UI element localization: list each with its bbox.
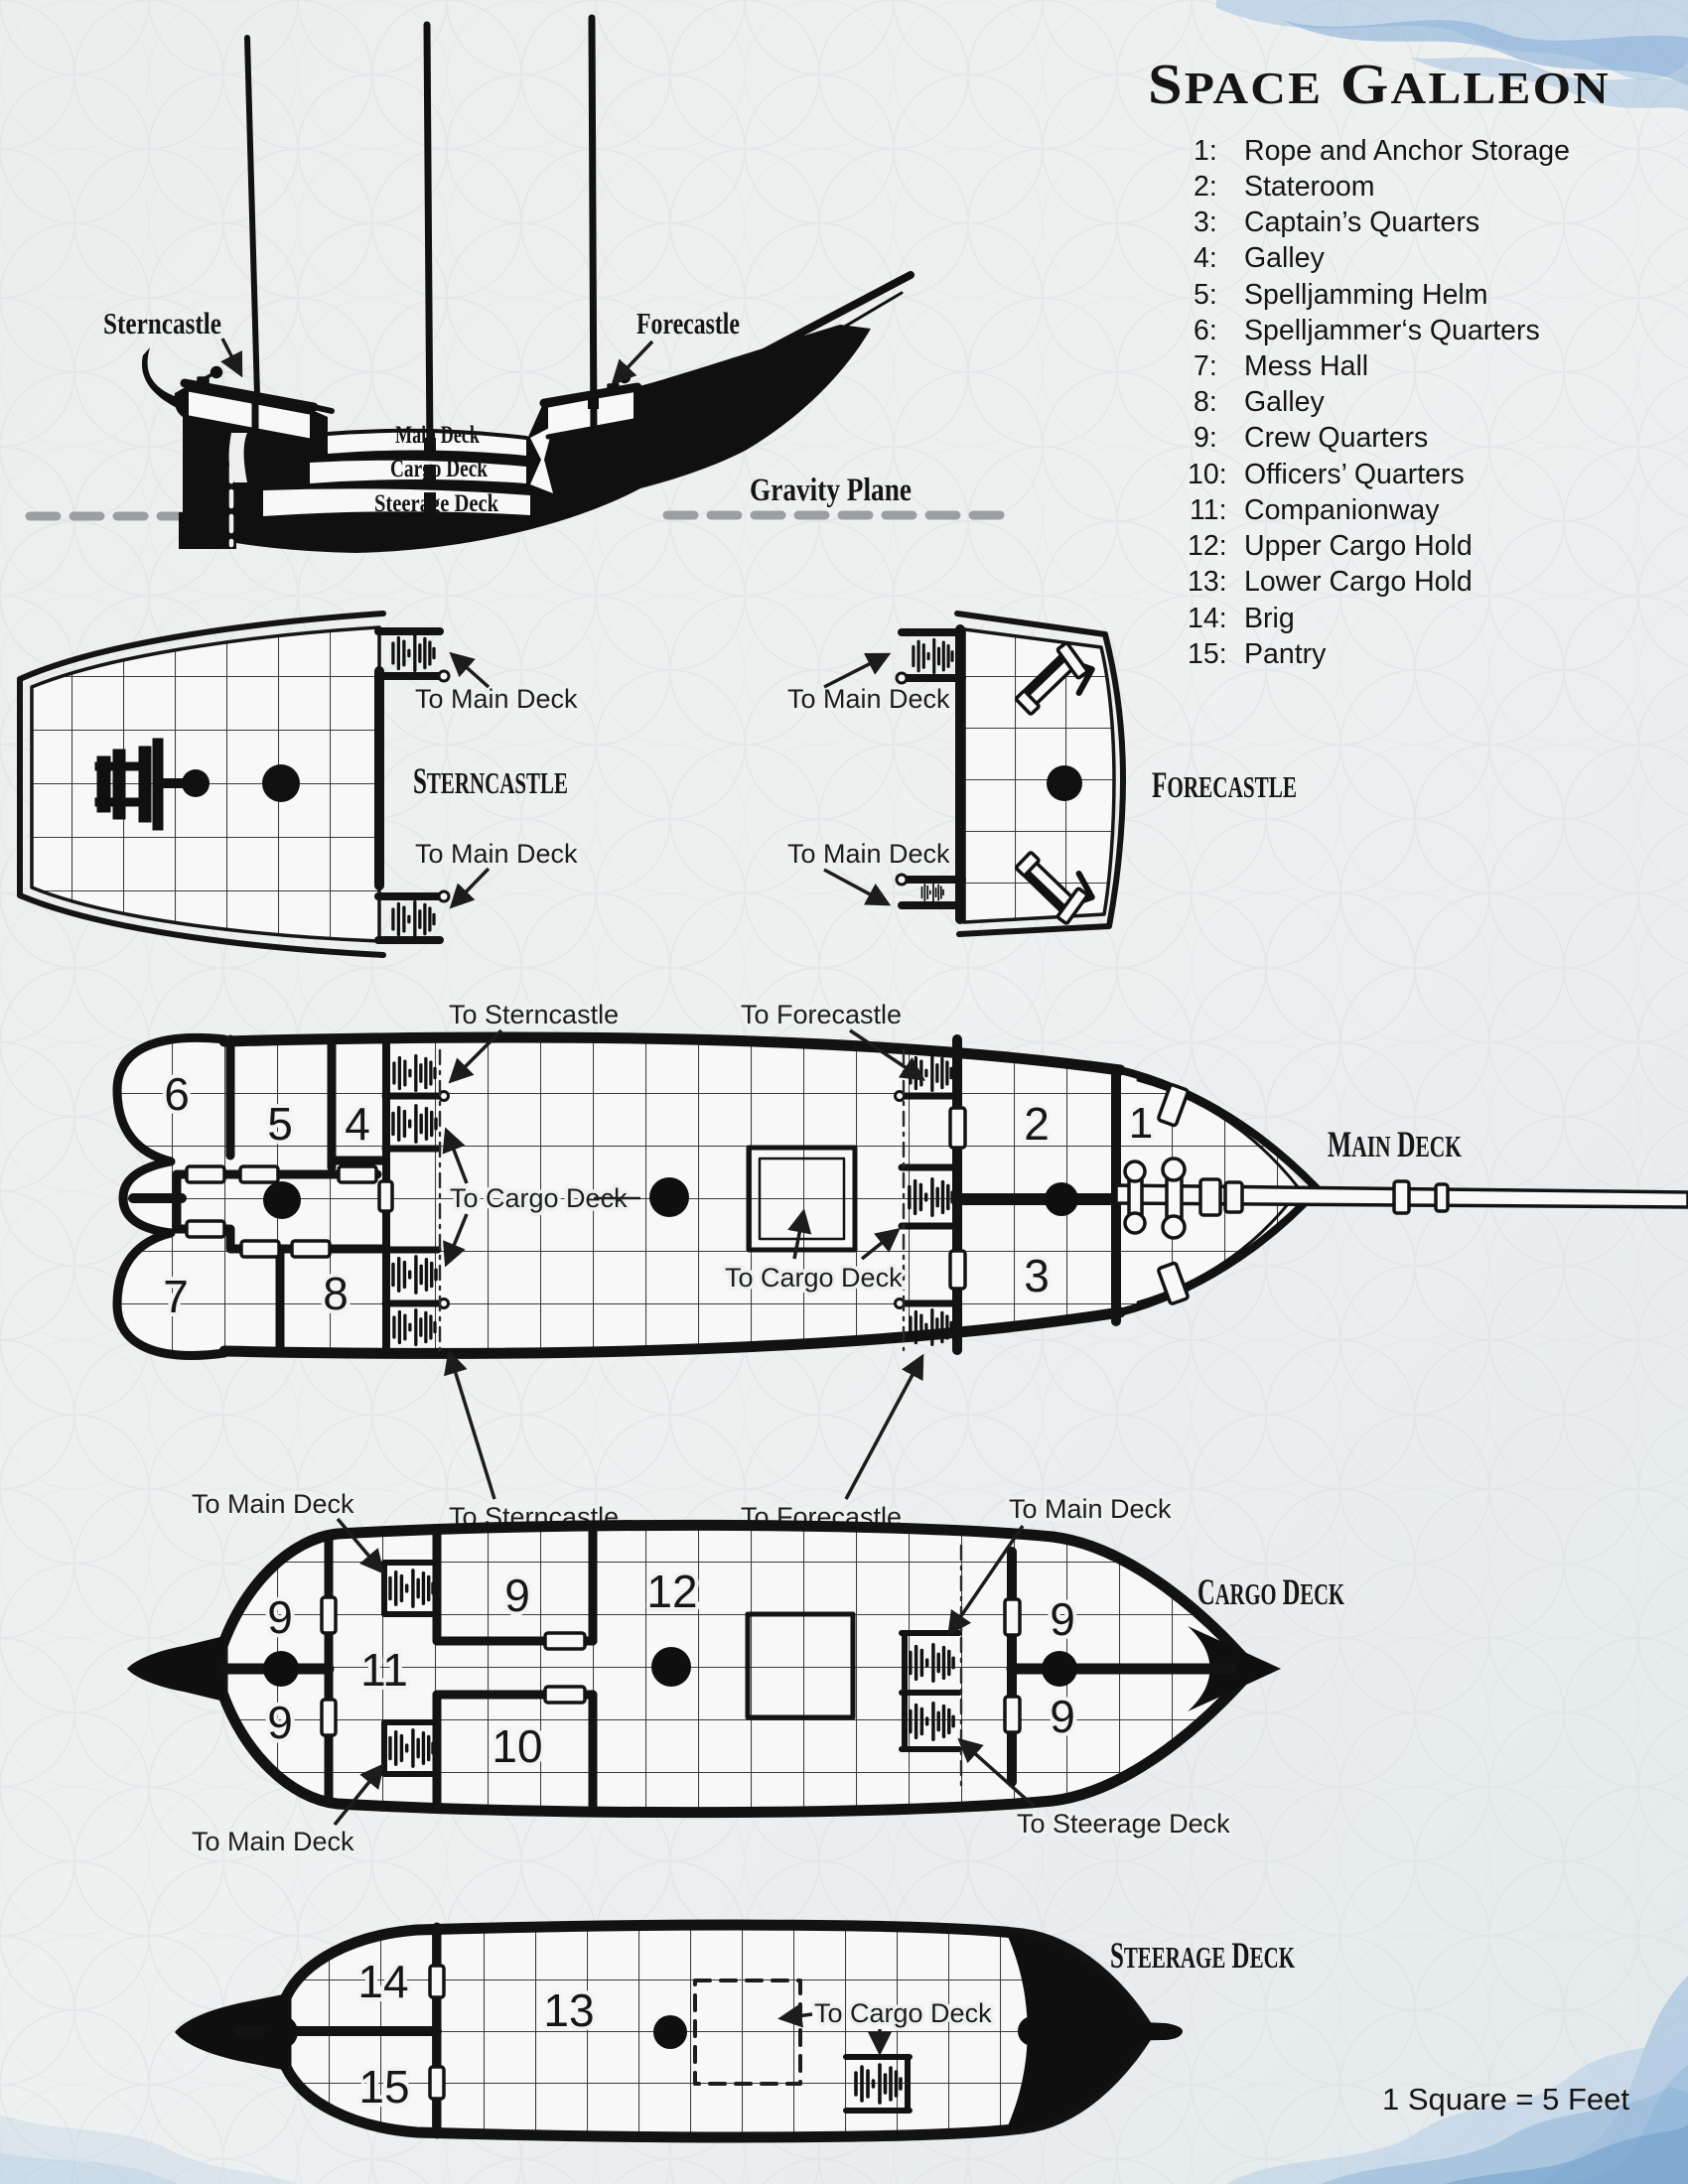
svg-text:CARGO DECK: CARGO DECK <box>1197 1572 1344 1613</box>
svg-text:1: 1 <box>1129 1099 1153 1148</box>
svg-text:Captain’s Quarters: Captain’s Quarters <box>1244 206 1479 238</box>
svg-text:To Sterncastle: To Sterncastle <box>449 1000 619 1029</box>
svg-text:To Main Deck: To Main Deck <box>415 839 578 869</box>
svg-text:MAIN DECK: MAIN DECK <box>1328 1125 1462 1165</box>
svg-text:STERNCASTLE: STERNCASTLE <box>413 761 568 802</box>
svg-text:To Main Deck: To Main Deck <box>1009 1494 1172 1524</box>
svg-text:5: 5 <box>267 1098 293 1150</box>
svg-text:To Cargo Deck: To Cargo Deck <box>725 1263 903 1293</box>
svg-text:9: 9 <box>1050 1593 1075 1645</box>
svg-text:Officers’ Quarters: Officers’ Quarters <box>1244 459 1465 490</box>
svg-text:5:: 5: <box>1194 279 1217 311</box>
svg-text:11:: 11: <box>1190 494 1227 526</box>
svg-text:6: 6 <box>164 1068 190 1120</box>
svg-text:10:: 10: <box>1188 459 1227 490</box>
svg-text:4:: 4: <box>1194 242 1217 274</box>
svg-text:11: 11 <box>360 1644 408 1696</box>
svg-text:1:: 1: <box>1194 135 1217 167</box>
svg-text:14: 14 <box>357 1956 408 2007</box>
svg-text:10: 10 <box>492 1720 542 1772</box>
svg-text:Lower Cargo Hold: Lower Cargo Hold <box>1244 566 1473 598</box>
svg-text:14:: 14: <box>1188 603 1227 634</box>
svg-text:Forecastle: Forecastle <box>636 306 740 341</box>
svg-text:9: 9 <box>267 1591 293 1643</box>
svg-text:13:: 13: <box>1188 566 1227 598</box>
svg-text:Main Deck: Main Deck <box>395 422 480 449</box>
svg-text:9: 9 <box>267 1697 293 1748</box>
svg-text:Galley: Galley <box>1244 242 1326 274</box>
svg-text:7:: 7: <box>1194 350 1217 382</box>
svg-text:To Main Deck: To Main Deck <box>192 1489 354 1519</box>
svg-text:8: 8 <box>323 1268 349 1319</box>
svg-text:15:: 15: <box>1188 638 1227 670</box>
svg-text:Rope and Anchor Storage: Rope and Anchor Storage <box>1244 135 1570 167</box>
svg-text:13: 13 <box>543 1984 594 2036</box>
svg-text:To Main Deck: To Main Deck <box>787 839 950 869</box>
svg-text:9: 9 <box>504 1570 530 1621</box>
svg-text:12:: 12: <box>1188 530 1227 562</box>
svg-text:7: 7 <box>163 1271 189 1322</box>
svg-text:6:: 6: <box>1194 315 1217 346</box>
svg-text:Spelljammer‘s Quarters: Spelljammer‘s Quarters <box>1244 315 1540 346</box>
svg-text:12: 12 <box>646 1566 697 1617</box>
svg-text:To Main Deck: To Main Deck <box>192 1827 354 1856</box>
svg-text:STEERAGE DECK: STEERAGE DECK <box>1110 1936 1295 1977</box>
svg-text:8:: 8: <box>1194 386 1217 418</box>
svg-text:To Main Deck: To Main Deck <box>415 684 578 714</box>
svg-text:3:: 3: <box>1194 206 1217 238</box>
svg-text:9: 9 <box>1050 1691 1075 1742</box>
svg-text:3: 3 <box>1024 1250 1050 1301</box>
svg-text:9:: 9: <box>1194 422 1217 454</box>
svg-text:To Forecastle: To Forecastle <box>741 1000 902 1029</box>
svg-text:To Cargo Deck: To Cargo Deck <box>814 1998 992 2028</box>
svg-text:15: 15 <box>358 2061 409 2113</box>
svg-text:Companionway: Companionway <box>1244 494 1440 526</box>
svg-text:Brig: Brig <box>1244 603 1295 634</box>
svg-text:Spelljamming Helm: Spelljamming Helm <box>1244 279 1488 311</box>
svg-text:2: 2 <box>1024 1098 1050 1150</box>
svg-text:Pantry: Pantry <box>1244 638 1327 670</box>
svg-text:To Steerage Deck: To Steerage Deck <box>1017 1809 1230 1839</box>
svg-text:Crew Quarters: Crew Quarters <box>1244 422 1428 454</box>
svg-text:Galley: Galley <box>1244 386 1326 418</box>
svg-text:4: 4 <box>345 1098 370 1150</box>
svg-text:To Main Deck: To Main Deck <box>787 684 950 714</box>
svg-text:Steerage Deck: Steerage Deck <box>374 490 498 517</box>
svg-text:Mess Hall: Mess Hall <box>1244 350 1368 382</box>
svg-text:1 Square = 5 Feet: 1 Square = 5 Feet <box>1382 2082 1629 2116</box>
svg-text:Sterncastle: Sterncastle <box>103 306 221 341</box>
svg-text:Gravity Plane: Gravity Plane <box>750 473 912 508</box>
svg-text:Stateroom: Stateroom <box>1244 171 1374 203</box>
svg-text:Upper Cargo Hold: Upper Cargo Hold <box>1244 530 1473 562</box>
svg-text:Cargo Deck: Cargo Deck <box>390 456 488 482</box>
svg-text:2:: 2: <box>1194 171 1217 203</box>
svg-text:FORECASTLE: FORECASTLE <box>1152 765 1297 806</box>
